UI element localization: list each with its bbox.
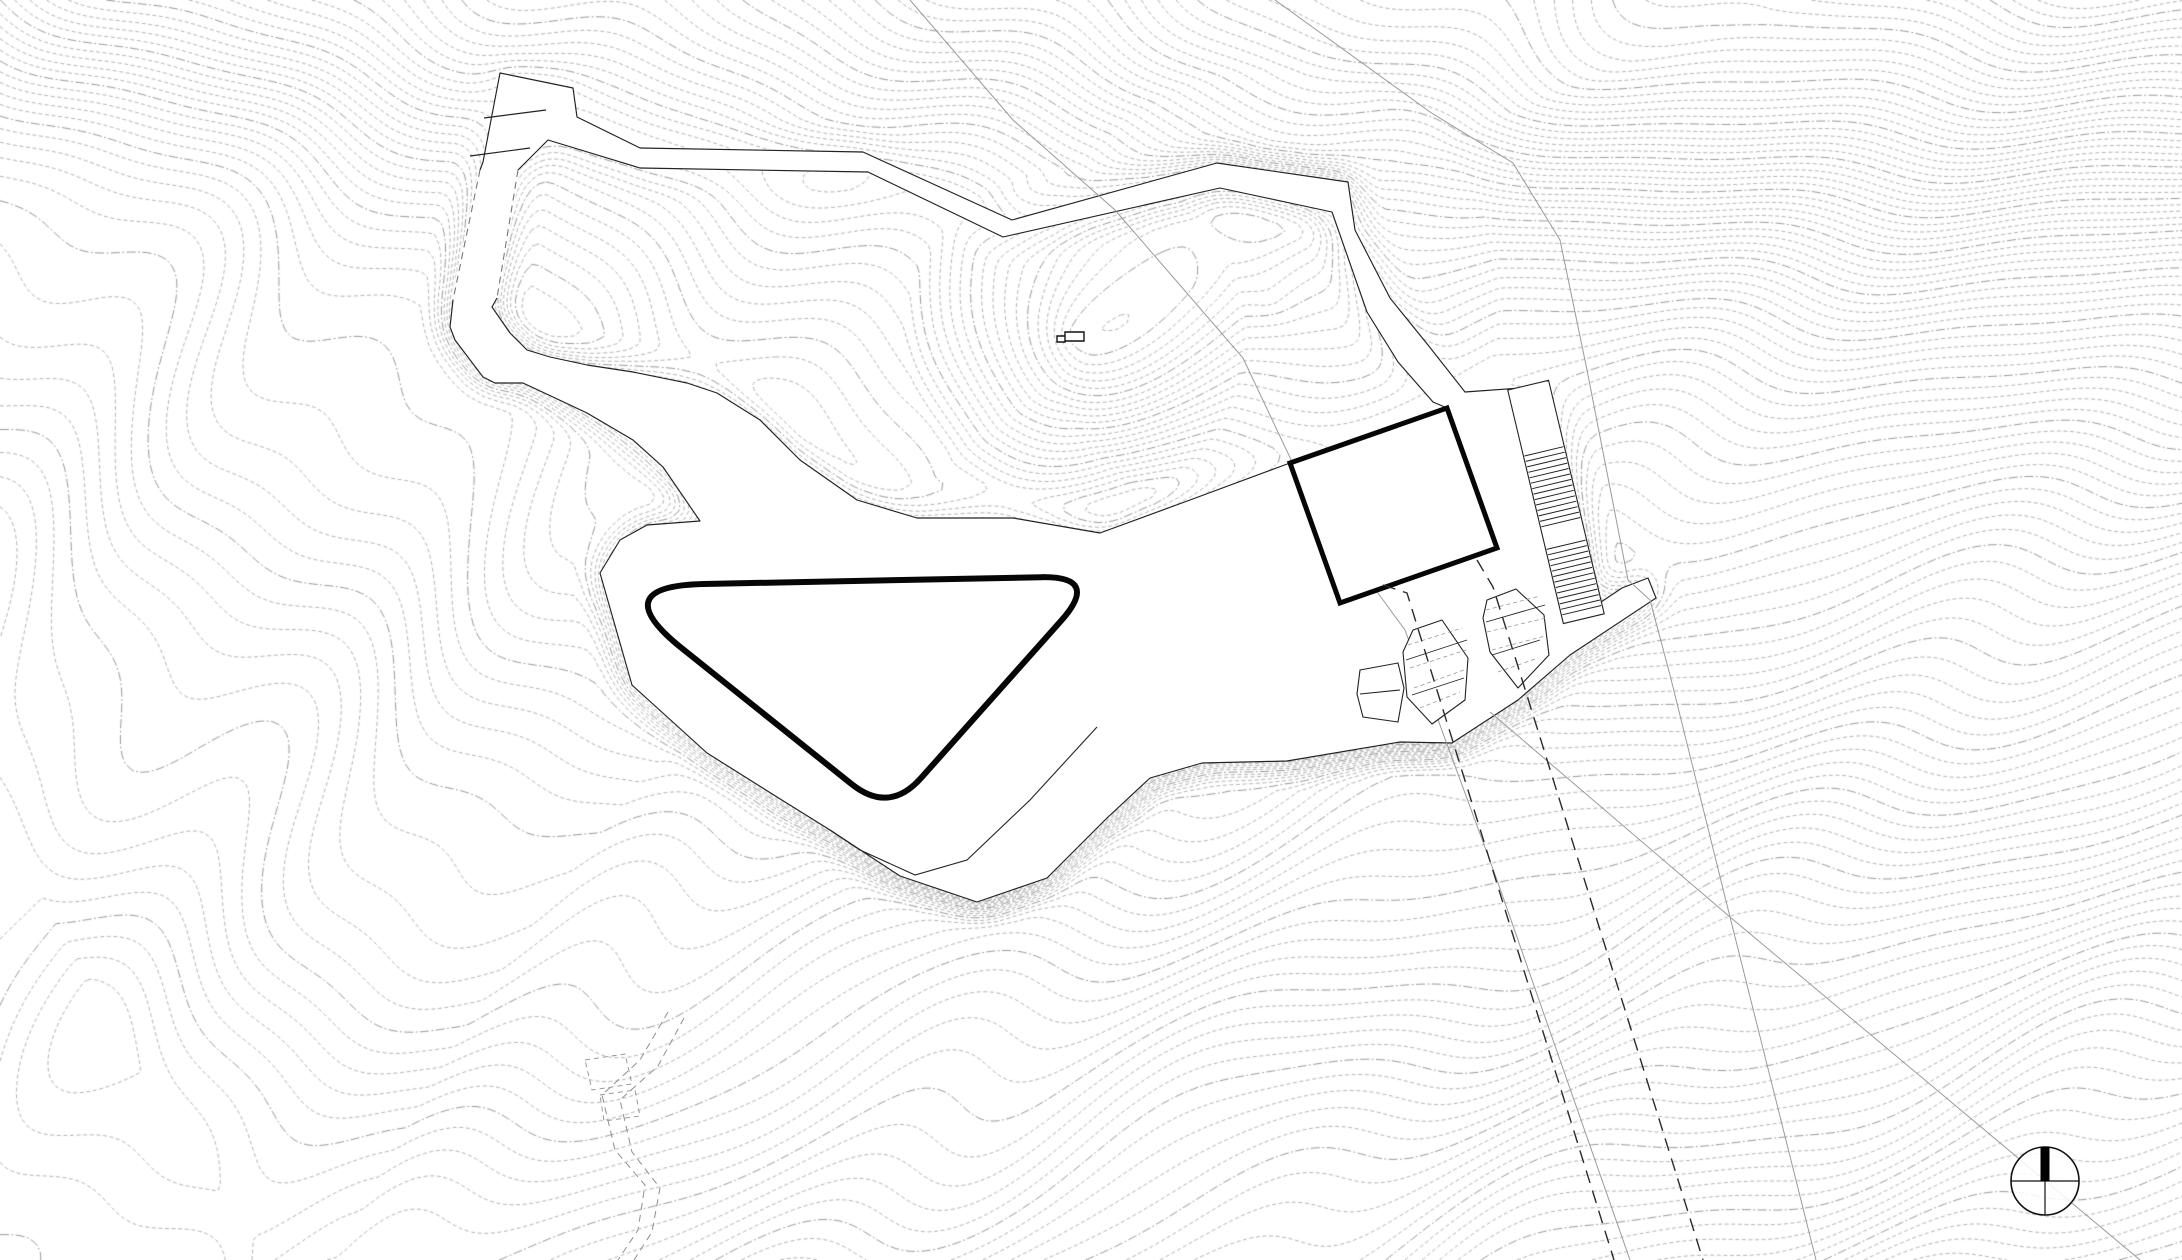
knoll-structure [1057,332,1084,342]
north-arrow-needle [2041,1147,2050,1181]
site-plan-overlay [0,0,2182,1260]
north-arrow [2011,1147,2079,1215]
hillside-trail [602,1012,684,1260]
site-plan-sheet [0,0,2182,1260]
side-steps-structure [1357,663,1404,722]
trail-planting-beds [585,1054,640,1121]
